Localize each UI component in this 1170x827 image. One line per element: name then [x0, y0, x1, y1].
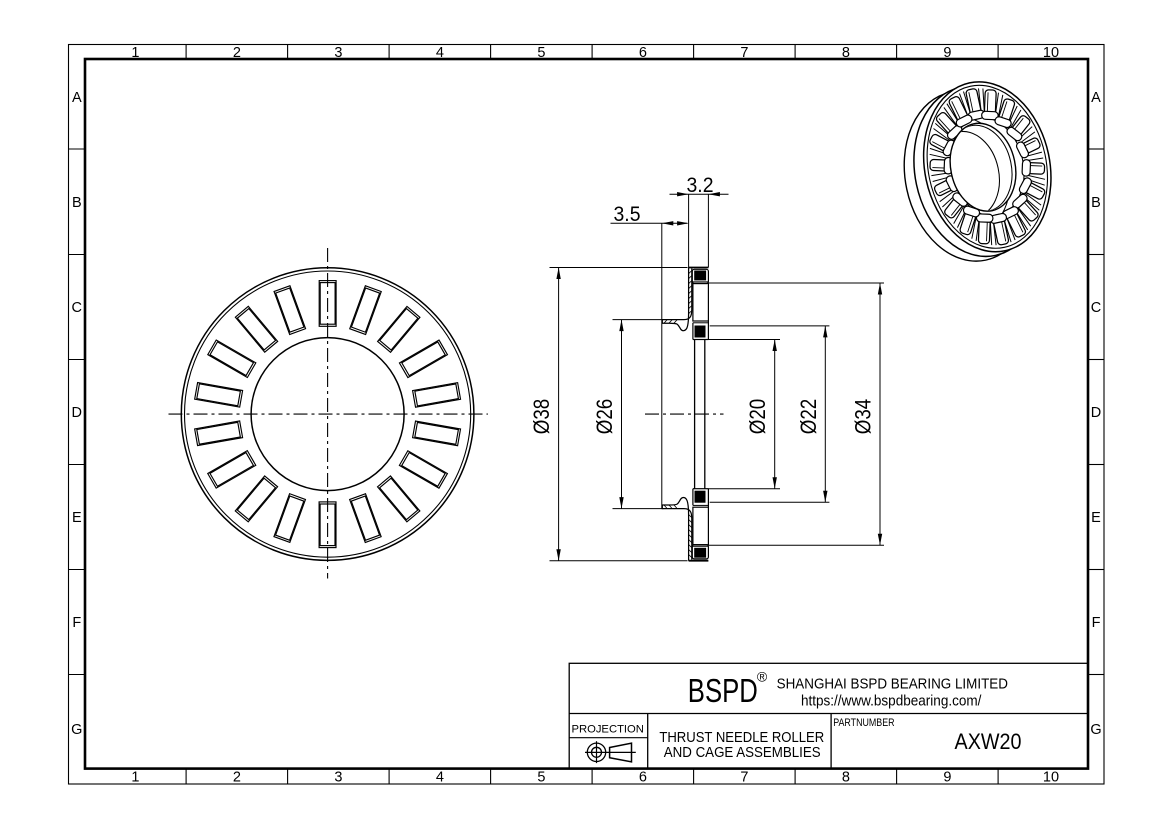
svg-text:5: 5 [537, 45, 545, 61]
svg-text:A: A [72, 90, 82, 106]
svg-text:7: 7 [740, 45, 748, 61]
svg-text:9: 9 [943, 770, 951, 786]
svg-text:F: F [1092, 615, 1101, 631]
svg-text:D: D [1091, 405, 1101, 421]
svg-text:AND CAGE ASSEMBLIES: AND CAGE ASSEMBLIES [664, 745, 821, 761]
svg-text:A: A [1091, 90, 1101, 106]
svg-text:SHANGHAI BSPD BEARING LIMITED: SHANGHAI BSPD BEARING LIMITED [777, 676, 1008, 692]
svg-text:7: 7 [740, 770, 748, 786]
svg-text:AXW20: AXW20 [955, 729, 1022, 754]
svg-text:Ø22: Ø22 [796, 399, 821, 435]
svg-text:3.5: 3.5 [614, 202, 641, 226]
svg-text:Ø26: Ø26 [592, 399, 617, 435]
svg-text:G: G [1090, 722, 1101, 738]
svg-text:BSPD: BSPD [688, 672, 758, 709]
svg-text:Ø20: Ø20 [745, 399, 770, 435]
svg-text:Ø38: Ø38 [529, 399, 554, 435]
svg-text:D: D [72, 405, 82, 421]
svg-text:2: 2 [233, 770, 241, 786]
svg-text:C: C [1091, 300, 1101, 316]
svg-text:4: 4 [436, 45, 444, 61]
svg-text:G: G [71, 722, 82, 738]
svg-text:PROJECTION: PROJECTION [571, 723, 644, 735]
svg-text:THRUST NEEDLE ROLLER: THRUST NEEDLE ROLLER [659, 730, 824, 746]
svg-text:2: 2 [233, 45, 241, 61]
svg-text:C: C [72, 300, 82, 316]
svg-text:6: 6 [639, 770, 647, 786]
svg-text:5: 5 [537, 770, 545, 786]
svg-text:8: 8 [842, 770, 850, 786]
svg-text:6: 6 [639, 45, 647, 61]
svg-text:3: 3 [334, 770, 342, 786]
svg-text:B: B [1091, 195, 1101, 211]
svg-text:B: B [72, 195, 82, 211]
svg-text:1: 1 [131, 45, 139, 61]
svg-text:10: 10 [1043, 770, 1059, 786]
svg-text:F: F [72, 615, 81, 631]
svg-text:Ø34: Ø34 [851, 399, 876, 435]
svg-text:1: 1 [131, 770, 139, 786]
svg-text:3: 3 [334, 45, 342, 61]
svg-text:PARTNUMBER: PARTNUMBER [833, 717, 895, 729]
svg-text:8: 8 [842, 45, 850, 61]
svg-text:E: E [72, 510, 82, 526]
svg-text:®: ® [757, 669, 768, 685]
svg-text:3.2: 3.2 [687, 173, 714, 197]
svg-text:9: 9 [943, 45, 951, 61]
svg-text:E: E [1091, 510, 1101, 526]
svg-text:https://www.bspdbearing.com/: https://www.bspdbearing.com/ [801, 694, 982, 710]
svg-text:4: 4 [436, 770, 444, 786]
svg-text:10: 10 [1043, 45, 1059, 61]
